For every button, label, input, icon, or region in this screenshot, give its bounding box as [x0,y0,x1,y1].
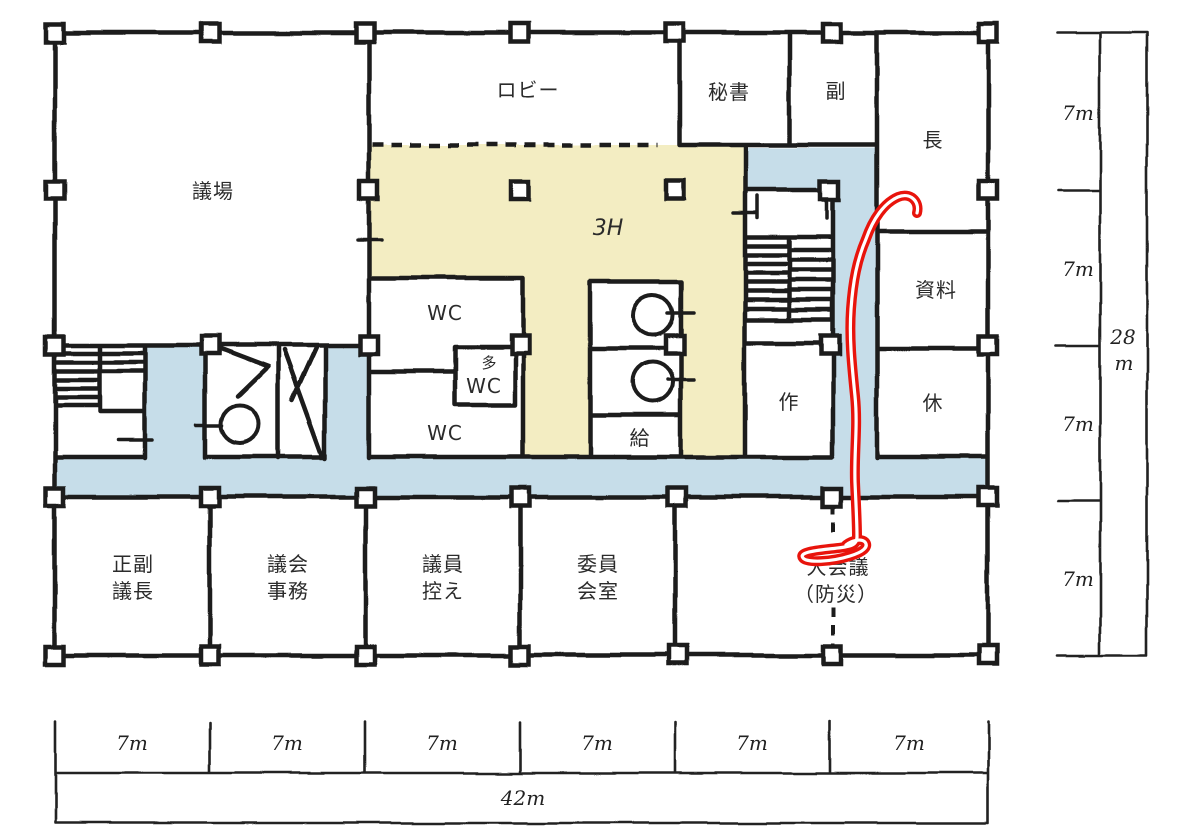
column-square [360,181,378,199]
label-saku: 作 [779,390,800,414]
column-square [823,24,841,42]
label-kyuto: 給 [630,426,651,450]
label-gijo: 議場 [192,179,234,203]
label-giin-line1: 議員 [422,552,464,576]
label-kyu: 休 [923,391,944,415]
corridor-west-shaft-fill [147,345,205,460]
elevator-car-icon [633,295,673,335]
dim-v-7m-4: 7m [1062,567,1094,591]
hall-3h-fill [369,145,745,455]
column-square [356,488,374,506]
column-square [821,336,839,354]
column-square [511,488,529,506]
column-square [511,646,529,664]
label-wc-multi: WC [466,374,502,398]
column-square [979,488,997,506]
column-square [979,181,997,199]
column-square [511,181,529,199]
label-iin-line1: 委員 [577,552,619,576]
column-square [669,646,687,664]
label-cho: 長 [923,128,944,152]
elevator-car-icon [633,362,673,402]
dim-28-line1: 28 [1109,325,1135,349]
column-square [666,24,684,42]
column-square [356,646,374,664]
column-square [46,24,64,42]
dim-7m-1: 7m [116,731,148,755]
dim-28-line2: m [1115,351,1134,375]
dim-v-7m-2: 7m [1062,257,1094,281]
label-seifuku-line2: 議長 [112,579,154,603]
floor-plan-canvas: 議場 ロビー 秘書 副 長 資料 休 作 3H WC 多 WC WC 給 正副 … [0,0,1188,839]
column-square [821,181,839,199]
label-lobby: ロビー [497,78,560,102]
label-wc-multi-mark: 多 [481,354,496,372]
column-square [201,24,219,42]
dim-7m-4: 7m [581,731,613,755]
dim-7m-6: 7m [893,731,925,755]
column-square [46,181,64,199]
label-gikai-line2: 事務 [267,579,309,603]
column-square [201,488,219,506]
dim-v-7m-1: 7m [1062,101,1094,125]
column-square [46,646,64,664]
label-seifuku-line1: 正副 [112,552,154,576]
machine-room-circle-icon [221,405,259,443]
column-square [511,24,529,42]
column-square [46,488,64,506]
column-square [666,181,684,199]
label-wc-south: WC [427,421,463,445]
column-square [979,646,997,664]
dim-42m: 42m [500,786,545,810]
column-square [823,646,841,664]
column-square [666,336,684,354]
dim-7m-5: 7m [736,731,768,755]
corridor-pocket-fill [325,345,369,460]
column-square [356,24,374,42]
dim-v-7m-3: 7m [1062,412,1094,436]
column-square [668,488,686,506]
column-square [201,646,219,664]
label-hisho: 秘書 [708,80,750,104]
label-gikai-line1: 議会 [267,552,309,576]
column-square [979,24,997,42]
column-square [46,336,64,354]
label-daikaigi-line2: （防災） [794,582,878,606]
label-giin-line2: 控え [422,579,464,603]
column-square [511,336,529,354]
column-square [360,336,378,354]
dim-7m-2: 7m [271,731,303,755]
label-wc-north: WC [427,301,463,325]
floor-plan-page: 議場 ロビー 秘書 副 長 資料 休 作 3H WC 多 WC WC 給 正副 … [0,0,1188,839]
label-hall-3h: 3H [593,216,624,241]
dim-7m-3: 7m [426,731,458,755]
column-square [979,336,997,354]
column-square [201,336,219,354]
label-fuku: 副 [826,79,847,103]
column-square [823,488,841,506]
label-iin-line2: 会室 [577,579,619,603]
label-shiryo: 資料 [915,278,957,302]
